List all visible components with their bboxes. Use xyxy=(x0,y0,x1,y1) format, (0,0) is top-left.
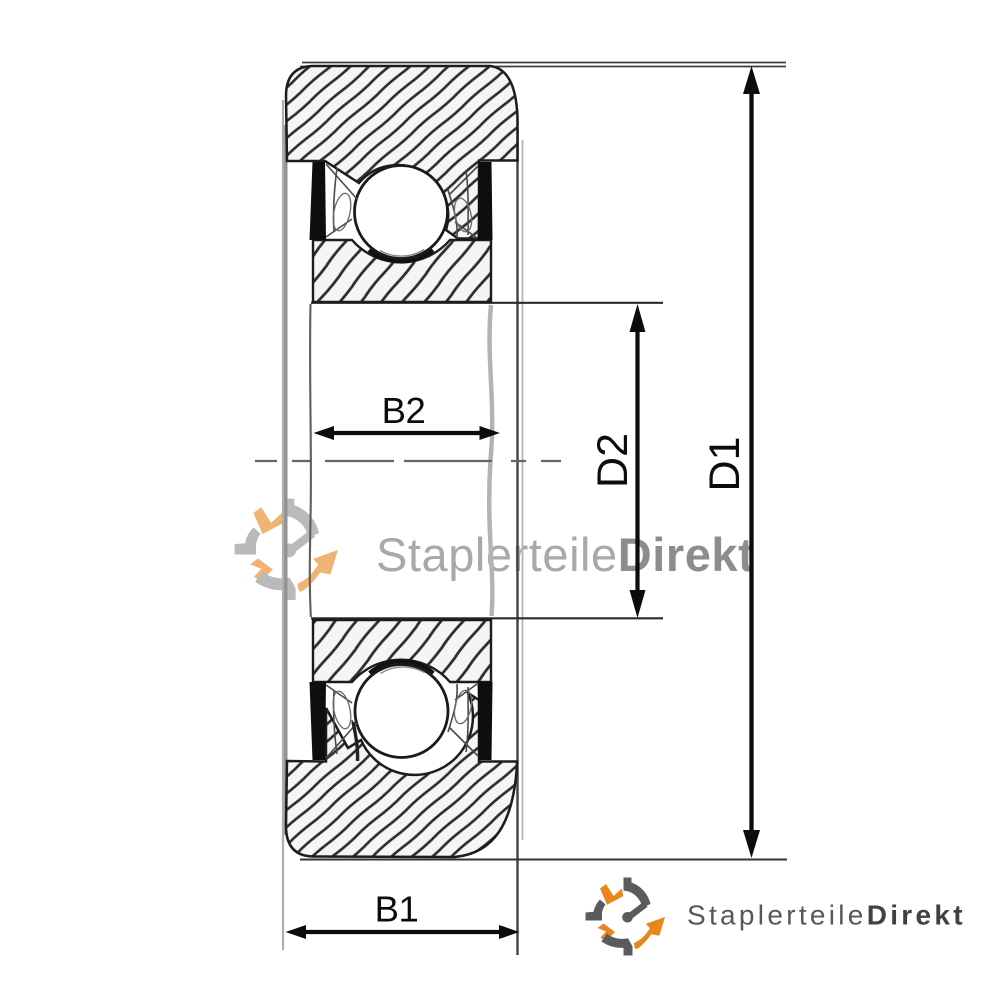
svg-text:D1: D1 xyxy=(701,437,749,492)
svg-text:StaplerteileDirekt: StaplerteileDirekt xyxy=(687,900,966,931)
svg-text:D2: D2 xyxy=(589,433,637,488)
svg-text:B1: B1 xyxy=(375,889,419,930)
svg-text:B2: B2 xyxy=(382,390,426,431)
svg-text:StaplerteileDirekt: StaplerteileDirekt xyxy=(376,528,754,581)
